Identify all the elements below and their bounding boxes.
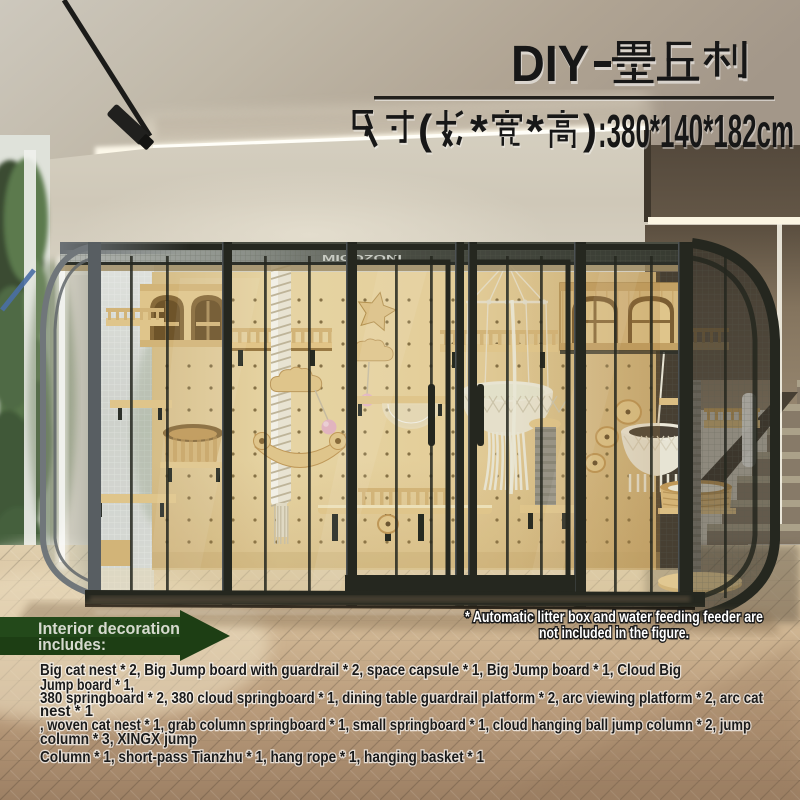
svg-text:(: ( xyxy=(418,106,432,153)
svg-text::380*140*182cm: :380*140*182cm xyxy=(598,105,794,157)
svg-text:not included in the figure.: not included in the figure. xyxy=(539,625,689,642)
svg-text:* Automatic litter box and wat: * Automatic litter box and water feeding… xyxy=(465,609,763,626)
svg-text:): ) xyxy=(583,106,597,153)
svg-text:*: * xyxy=(526,105,544,157)
svg-text:Big cat nest * 2, Big Jump boa: Big cat nest * 2, Big Jump board with gu… xyxy=(40,662,681,679)
svg-text:includes:: includes: xyxy=(38,635,106,654)
svg-text:DIY: DIY xyxy=(511,35,589,92)
svg-text:Column * 1, short-pass Tianzhu: Column * 1, short-pass Tianzhu * 1, hang… xyxy=(40,749,484,766)
svg-text:380 springboard * 2, 380 cloud: 380 springboard * 2, 380 cloud springboa… xyxy=(40,690,763,707)
svg-text:*: * xyxy=(470,105,488,157)
svg-text:column * 3, XINGX jump: column * 3, XINGX jump xyxy=(40,731,197,748)
